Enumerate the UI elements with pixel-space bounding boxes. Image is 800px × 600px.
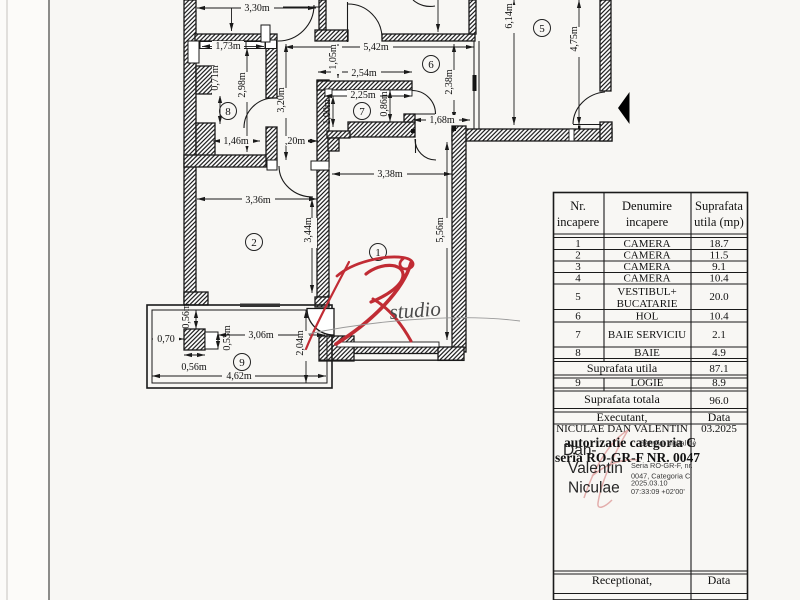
svg-text:0,86m: 0,86m <box>379 91 390 117</box>
svg-text:CAMERA: CAMERA <box>623 273 670 285</box>
svg-text:7: 7 <box>575 329 581 341</box>
svg-text:CAMERA: CAMERA <box>623 238 670 250</box>
svg-text:3: 3 <box>575 261 581 273</box>
svg-text:NICULAE DAN VALENTIN: NICULAE DAN VALENTIN <box>556 423 688 435</box>
svg-text:5,56m: 5,56m <box>435 217 446 243</box>
svg-text:8: 8 <box>225 106 231 118</box>
svg-text:HOL: HOL <box>636 311 659 323</box>
svg-text:3,38m: 3,38m <box>377 169 403 180</box>
svg-text:07:33:09 +02'00': 07:33:09 +02'00' <box>631 487 685 496</box>
svg-text:,20m: ,20m <box>285 136 306 147</box>
svg-text:Niculae: Niculae <box>568 480 620 497</box>
svg-text:3,36m: 3,36m <box>245 195 271 206</box>
svg-text:Data: Data <box>708 573 731 587</box>
svg-text:incapere: incapere <box>626 215 669 229</box>
svg-text:1,68m: 1,68m <box>429 115 455 126</box>
svg-text:Nr.: Nr. <box>570 199 586 213</box>
svg-text:BUCATARIE: BUCATARIE <box>617 298 678 310</box>
svg-text:1,05m: 1,05m <box>328 44 339 70</box>
svg-text:4,62m: 4,62m <box>226 371 252 382</box>
svg-text:Data: Data <box>708 410 731 424</box>
svg-text:LOGIE: LOGIE <box>631 377 664 389</box>
svg-text:2,04m: 2,04m <box>295 330 306 356</box>
svg-text:Seria RO-GR-F, nr.: Seria RO-GR-F, nr. <box>631 461 693 470</box>
svg-text:utila (mp): utila (mp) <box>694 215 744 229</box>
svg-text:8.9: 8.9 <box>712 377 726 389</box>
svg-text:18.7: 18.7 <box>709 238 729 250</box>
svg-text:9: 9 <box>575 377 581 389</box>
svg-text:3,20m: 3,20m <box>276 87 287 113</box>
svg-text:10.4: 10.4 <box>709 311 729 323</box>
svg-text:3,44m: 3,44m <box>303 217 314 243</box>
svg-text:10.4: 10.4 <box>709 273 729 285</box>
svg-text:Denumire: Denumire <box>622 199 672 213</box>
svg-text:0,56m: 0,56m <box>181 303 192 329</box>
svg-text:Suprafata utila: Suprafata utila <box>587 361 658 375</box>
svg-text:5,42m: 5,42m <box>363 42 389 53</box>
svg-text:4,75m: 4,75m <box>569 26 580 52</box>
svg-text:1: 1 <box>575 238 581 250</box>
svg-text:0,53m: 0,53m <box>222 325 233 351</box>
svg-text:9: 9 <box>239 357 245 369</box>
svg-text:2,98m: 2,98m <box>237 72 248 98</box>
svg-text:6: 6 <box>428 59 434 71</box>
svg-text:4: 4 <box>575 273 581 285</box>
svg-text:2.1: 2.1 <box>712 329 726 341</box>
svg-text:2,25m: 2,25m <box>350 90 376 101</box>
svg-text:3,30m: 3,30m <box>244 3 270 14</box>
svg-text:87.1: 87.1 <box>709 363 728 375</box>
svg-text:2: 2 <box>575 250 581 262</box>
svg-text:2,38m: 2,38m <box>444 69 455 95</box>
svg-text:CAMERA: CAMERA <box>623 250 670 262</box>
svg-text:20.0: 20.0 <box>709 291 729 303</box>
svg-text:Semnat digital de: Semnat digital de <box>640 439 696 448</box>
svg-text:BAIE SERVICIU: BAIE SERVICIU <box>608 329 686 341</box>
svg-text:CAMERA: CAMERA <box>623 261 670 273</box>
svg-text:6: 6 <box>575 311 581 323</box>
svg-text:11.5: 11.5 <box>710 250 729 262</box>
svg-text:1,46m: 1,46m <box>223 136 249 147</box>
svg-text:0,56m: 0,56m <box>181 362 207 373</box>
svg-text:8: 8 <box>575 347 581 359</box>
svg-text:5: 5 <box>539 23 545 35</box>
svg-text:Suprafata: Suprafata <box>695 199 743 213</box>
svg-text:6,14m: 6,14m <box>504 3 515 29</box>
svg-text:9.1: 9.1 <box>712 261 726 273</box>
svg-text:03.2025: 03.2025 <box>701 423 737 435</box>
svg-text:1,00m: 1,00m <box>322 99 333 125</box>
svg-text:incapere: incapere <box>557 215 600 229</box>
svg-text:VESTIBUL+: VESTIBUL+ <box>617 286 676 298</box>
svg-text:0,71m: 0,71m <box>210 65 221 91</box>
svg-text:3,06m: 3,06m <box>248 330 274 341</box>
svg-text:Receptionat,: Receptionat, <box>592 573 652 587</box>
svg-text:Dan-: Dan- <box>563 442 597 459</box>
svg-text:0,70: 0,70 <box>157 334 175 345</box>
svg-text:Suprafata totala: Suprafata totala <box>584 392 660 406</box>
svg-text:96.0: 96.0 <box>709 395 729 407</box>
svg-text:1,73m: 1,73m <box>215 41 241 52</box>
svg-text:4.9: 4.9 <box>712 347 726 359</box>
svg-text:2,54m: 2,54m <box>351 68 377 79</box>
svg-text:Executant,: Executant, <box>597 410 648 424</box>
svg-text:Valentin: Valentin <box>568 460 623 477</box>
svg-text:2: 2 <box>251 237 257 249</box>
svg-text:BAIE: BAIE <box>634 347 660 359</box>
svg-text:5: 5 <box>575 291 581 303</box>
svg-text:7: 7 <box>359 106 365 118</box>
